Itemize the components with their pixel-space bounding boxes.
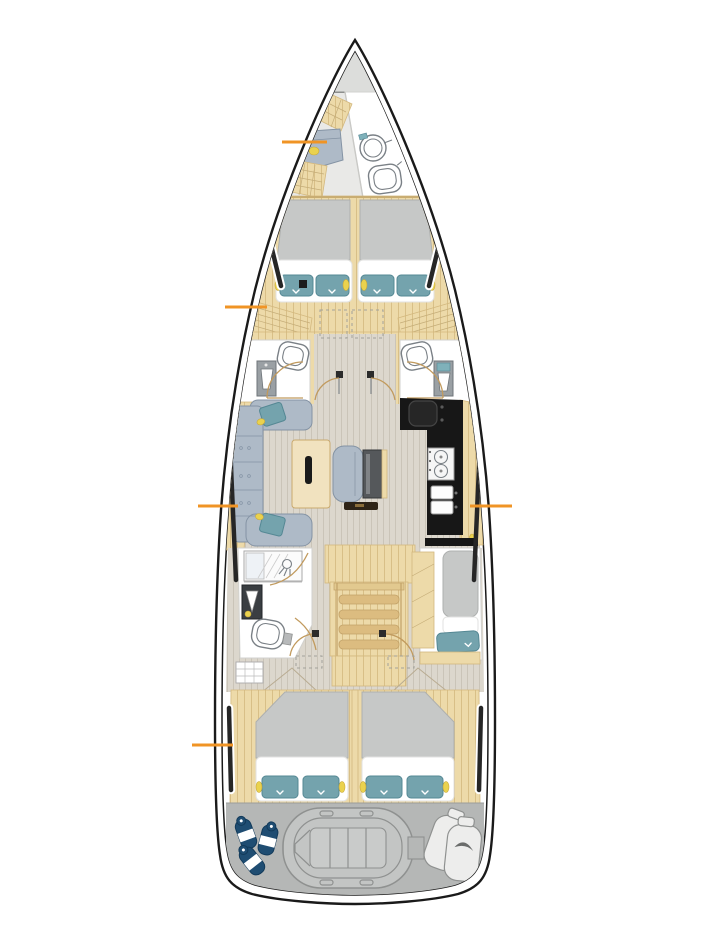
stairs-apron: [332, 656, 406, 686]
companionway-stairs: [330, 582, 408, 686]
aft-bathroom-shower: [244, 551, 302, 582]
berth-foot-board: [420, 652, 480, 664]
saloon-table: [292, 440, 330, 508]
galley-end-strip: [425, 538, 478, 546]
deck-plan-svg: [0, 0, 710, 947]
aft-bathroom-sink: [242, 585, 262, 619]
forward-bed-starboard-mattress: [360, 200, 433, 260]
berth-pillow: [436, 631, 479, 654]
deck-plan: [0, 0, 710, 947]
dinghy-transom: [408, 837, 424, 859]
lower-mid: [226, 538, 484, 692]
starboard-berth: [412, 538, 482, 664]
forward-bed-port-mattress: [277, 200, 350, 260]
saloon: [226, 398, 484, 550]
galley-stove: [428, 448, 454, 480]
stairs-landing: [325, 545, 415, 583]
berth-shelves: [412, 552, 434, 648]
saloon-chair: [333, 446, 363, 502]
tender-garage: [226, 803, 484, 900]
galley-top-sink: [409, 401, 437, 426]
aft-cabins: [229, 690, 481, 803]
center-passage-floor: [314, 334, 396, 406]
aft-cabin-divider: [352, 690, 358, 803]
mast-foot: [299, 280, 307, 288]
aft-bathroom-step-locker: [236, 662, 263, 683]
dinghy: [283, 808, 424, 888]
